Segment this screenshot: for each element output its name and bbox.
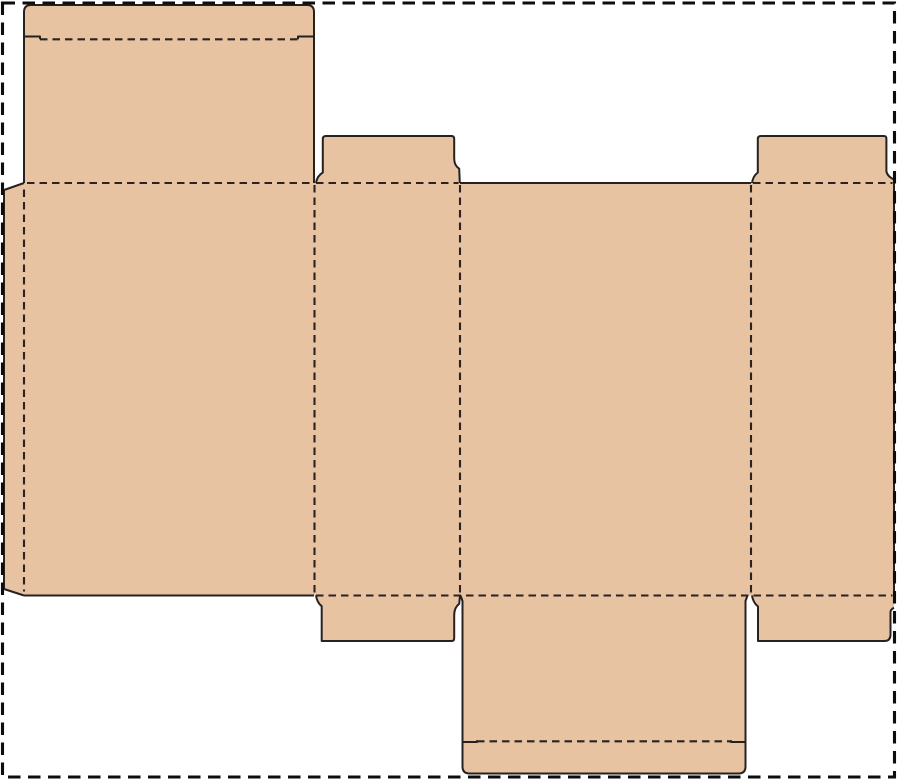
left-side-panel-with-glue-tab — [4, 183, 314, 596]
top-dust-flap-right — [752, 136, 894, 183]
top-dust-flap-left — [316, 136, 460, 183]
main-panel-row — [314, 183, 894, 596]
bottom-lid-panel-with-tuck-flap — [461, 596, 748, 774]
bottom-dust-flap-left — [316, 596, 460, 642]
bottom-dust-flap-right — [752, 596, 894, 642]
lid-panel-with-tuck-flap — [24, 5, 314, 183]
box-dieline-svg — [0, 0, 900, 780]
sheet-canvas — [0, 0, 900, 780]
